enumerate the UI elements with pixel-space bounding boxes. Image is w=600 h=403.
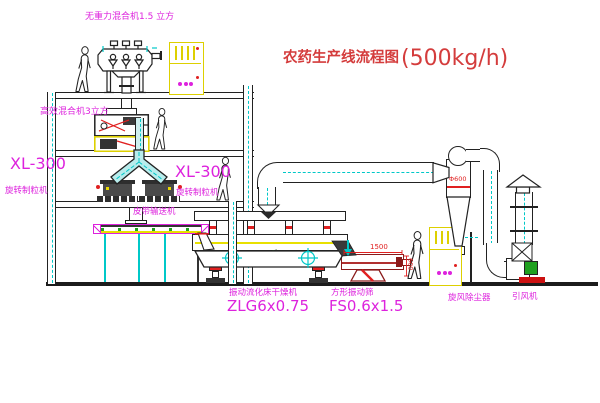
indicator-lamp bbox=[196, 76, 199, 79]
title-cn: 农药生产线流程图 bbox=[283, 50, 399, 66]
platform-beam-top bbox=[48, 92, 254, 99]
label-belt-conveyor: 皮带输送机 bbox=[133, 208, 176, 217]
stack-flange bbox=[510, 230, 538, 232]
knob bbox=[189, 82, 193, 86]
person-figure bbox=[76, 47, 90, 92]
dim-screen-length: 1500 bbox=[370, 244, 388, 251]
label-granulator-right-model: XL-300 bbox=[175, 164, 231, 180]
port-red-ring bbox=[286, 226, 292, 229]
column-centerline bbox=[233, 202, 234, 283]
dryer-port bbox=[209, 220, 217, 235]
exhaust-duct-horizontal bbox=[283, 162, 434, 183]
dryer-port bbox=[285, 220, 293, 235]
cabinet-knobs bbox=[178, 71, 195, 90]
label-screen-model: FS0.6x1.5 bbox=[329, 299, 403, 314]
granulator-left bbox=[100, 180, 135, 202]
dryer-leg-stem bbox=[212, 271, 219, 278]
belt-lower-line bbox=[97, 231, 205, 233]
cabinet-vent bbox=[447, 231, 449, 244]
cabinet-vent bbox=[441, 231, 443, 244]
cyclone-top-circle bbox=[448, 146, 468, 166]
control-cabinet-top bbox=[169, 42, 204, 95]
belt-pulley-left bbox=[93, 224, 101, 234]
duct-elbow-up bbox=[257, 162, 285, 189]
granulator-lamp bbox=[96, 185, 100, 189]
screen-base bbox=[351, 270, 385, 281]
dryer-port bbox=[323, 220, 331, 235]
belt-top-line bbox=[97, 225, 205, 227]
indicator-lamp bbox=[196, 47, 199, 50]
label-granulator-left-model: XL-300 bbox=[10, 156, 66, 172]
dim-cyclone-diameter: Φ600 bbox=[449, 176, 467, 183]
granulator-body bbox=[103, 184, 132, 196]
cabinet-vent bbox=[193, 46, 195, 60]
mixer-discharge-duct bbox=[135, 118, 144, 152]
cad-flow-diagram: 农药生产线流程图(500kg/h) 无重力混合机1.5 立方 高效混合机3立方 … bbox=[0, 0, 600, 403]
knob bbox=[437, 271, 441, 275]
detail bbox=[106, 187, 109, 190]
granulator-base-flange bbox=[139, 196, 180, 202]
column-middle bbox=[228, 201, 237, 284]
dryer-motor bbox=[260, 250, 279, 266]
mixer-centerline-ticks bbox=[103, 46, 157, 52]
granulator-body bbox=[145, 184, 174, 196]
knob bbox=[443, 271, 447, 275]
stack-centerline bbox=[524, 193, 525, 244]
port-red-ring bbox=[324, 226, 330, 229]
dryer-leg-stem bbox=[315, 271, 322, 278]
conveyor-leg bbox=[104, 234, 106, 282]
conveyor-leg bbox=[164, 234, 166, 282]
screen-deck-line bbox=[342, 262, 403, 264]
label-granulator-right-name: 旋转制粒机 bbox=[176, 189, 219, 198]
exhaust-riser bbox=[258, 187, 276, 206]
vibrating-screen-body bbox=[341, 254, 404, 270]
dryer-leg-base bbox=[309, 278, 328, 283]
cabinet-knobs bbox=[437, 260, 454, 279]
label-cyclone-name: 旋风除尘器 bbox=[448, 294, 491, 303]
indicator-lamp bbox=[454, 233, 457, 236]
detail bbox=[168, 187, 171, 190]
granulator-right bbox=[142, 180, 177, 202]
column-centerline bbox=[248, 86, 249, 283]
cyclone-leg bbox=[470, 232, 472, 283]
conveyor-leg bbox=[138, 234, 140, 282]
cabinet-vent bbox=[181, 46, 183, 60]
cabinet-divider bbox=[170, 63, 201, 64]
stack-rain-cap bbox=[507, 175, 540, 193]
column-left bbox=[47, 92, 56, 284]
indicator-lamp bbox=[454, 264, 457, 267]
cabinet-vent bbox=[187, 46, 189, 60]
dryer-port bbox=[247, 220, 255, 235]
knob bbox=[178, 82, 182, 86]
cabinet-vent bbox=[175, 46, 177, 60]
label-granulator-left-name: 旋转制粒机 bbox=[5, 187, 48, 196]
dryer-leg-base bbox=[206, 278, 225, 283]
label-dryer-model: ZLG6x0.75 bbox=[227, 299, 309, 314]
duct-centerline bbox=[267, 188, 268, 205]
cabinet-vent bbox=[435, 231, 437, 244]
duct-centerline bbox=[283, 172, 434, 173]
duct-centerline bbox=[140, 119, 141, 151]
person-figure bbox=[154, 108, 167, 149]
platform-beam-mid bbox=[48, 150, 254, 157]
knob bbox=[448, 271, 452, 275]
knob bbox=[184, 82, 188, 86]
column-centerline bbox=[52, 93, 53, 283]
port-red-ring bbox=[210, 226, 216, 229]
person-figure bbox=[408, 232, 423, 279]
fan-motor bbox=[524, 261, 538, 275]
granulator-base-flange bbox=[97, 196, 138, 202]
duct-elbow-down bbox=[480, 148, 500, 172]
exhaust-stack bbox=[515, 192, 533, 245]
fan-suction-downpipe bbox=[483, 170, 498, 245]
belt-conveyor bbox=[96, 224, 206, 234]
control-cabinet-right bbox=[429, 227, 462, 286]
label-gravity-mixer: 无重力混合机1.5 立方 bbox=[85, 13, 174, 22]
gravity-mixer bbox=[98, 41, 161, 93]
dim-screen-height: 600 bbox=[407, 258, 414, 270]
label-fan-name: 引风机 bbox=[512, 293, 538, 302]
cabinet-divider bbox=[430, 249, 459, 250]
stack-flange bbox=[510, 206, 538, 208]
dryer-bed-body bbox=[192, 234, 348, 251]
belt-pulley-right bbox=[201, 224, 209, 234]
fan-base bbox=[519, 277, 545, 283]
dryer-yellow-line bbox=[195, 242, 345, 244]
port-red-ring bbox=[248, 226, 254, 229]
cyclone-red-line bbox=[447, 186, 470, 188]
title-capacity: (500kg/h) bbox=[401, 46, 508, 71]
label-high-efficiency-mixer: 高效混合机3立方 bbox=[40, 108, 109, 117]
duct-centerline bbox=[491, 171, 492, 244]
column-right bbox=[243, 85, 253, 284]
page-title: 农药生产线流程图(500kg/h) bbox=[283, 48, 508, 70]
